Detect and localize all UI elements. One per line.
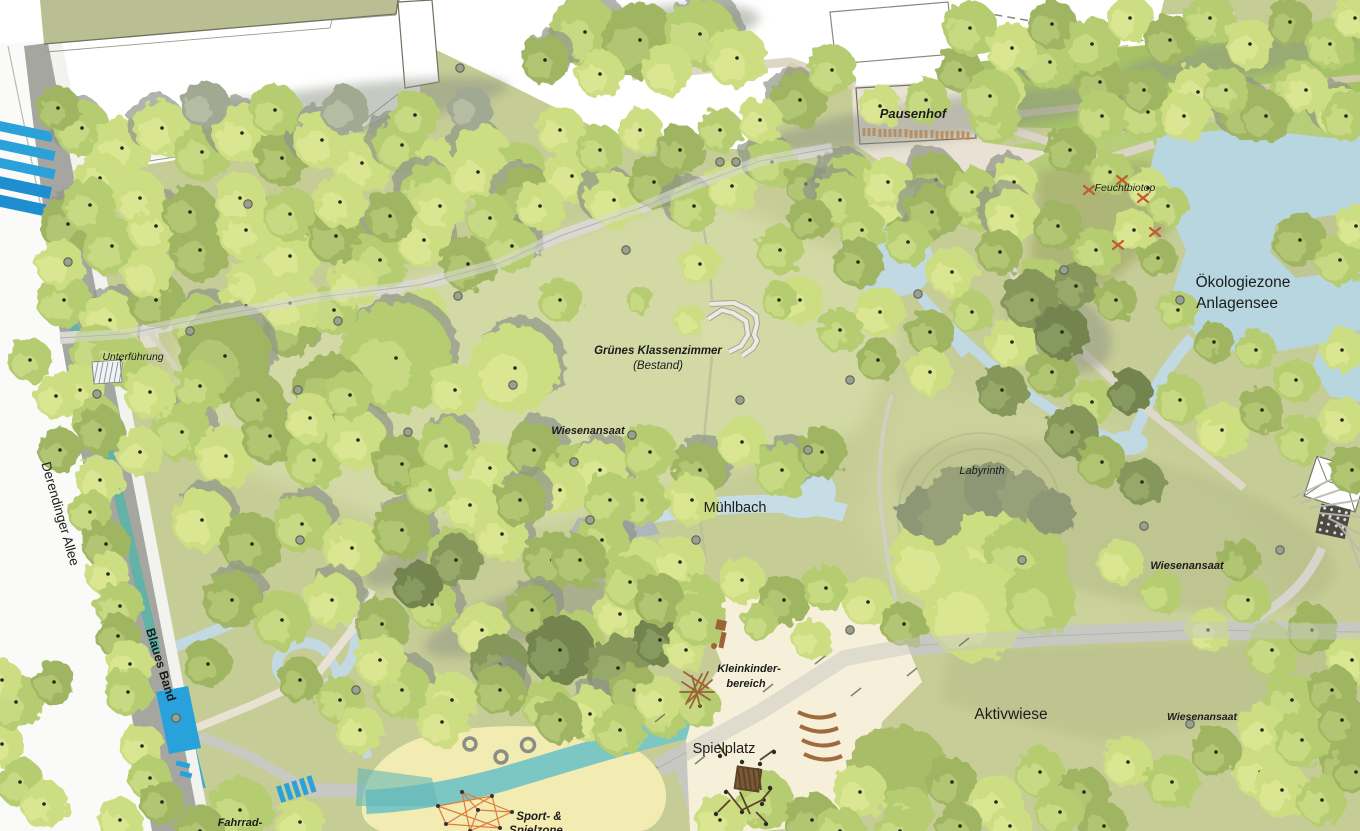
svg-text:Wiesenansaat: Wiesenansaat <box>1167 711 1237 723</box>
svg-text:(Bestand): (Bestand) <box>633 360 683 372</box>
svg-text:Kleinkinder-: Kleinkinder- <box>717 663 781 675</box>
svg-text:Spielzone: Spielzone <box>509 825 563 831</box>
svg-text:Ökologiezone: Ökologiezone <box>1196 273 1291 291</box>
svg-text:Wiesenansaat: Wiesenansaat <box>551 425 626 437</box>
svg-text:Mühlbach: Mühlbach <box>704 500 767 516</box>
svg-text:bereich: bereich <box>726 678 765 690</box>
svg-text:Labyrinth: Labyrinth <box>959 465 1004 477</box>
svg-text:Sport- &: Sport- & <box>516 811 561 823</box>
svg-text:Pausenhof: Pausenhof <box>880 106 948 121</box>
svg-text:Spielplatz: Spielplatz <box>693 741 756 757</box>
svg-text:Grünes Klassenzimmer: Grünes Klassenzimmer <box>594 345 722 357</box>
svg-text:Feuchtbiotop: Feuchtbiotop <box>1095 182 1156 194</box>
svg-text:Unterführung: Unterführung <box>102 351 163 363</box>
svg-text:Fahrrad-: Fahrrad- <box>218 817 263 829</box>
svg-text:Wiesenansaat: Wiesenansaat <box>1150 560 1225 572</box>
svg-text:Anlagensee: Anlagensee <box>1196 295 1278 312</box>
svg-text:Aktivwiese: Aktivwiese <box>974 706 1047 723</box>
